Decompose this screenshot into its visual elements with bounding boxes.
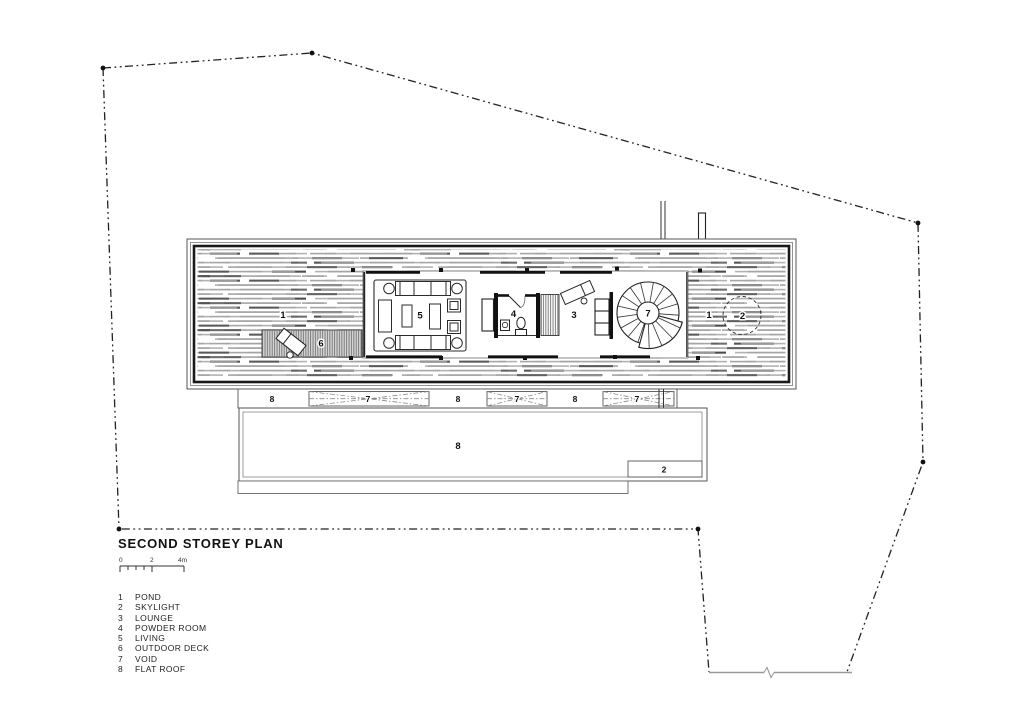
label-band-2: 8 xyxy=(456,394,461,404)
legend-item-flat-roof: 8FLAT ROOF xyxy=(118,664,209,674)
scale-tick-0: 0 xyxy=(119,557,123,564)
legend-num: 2 xyxy=(118,602,135,612)
corner-table xyxy=(452,283,463,294)
title-block: SECOND STOREY PLAN 0 2 4m xyxy=(118,536,418,582)
legend-name: FLAT ROOF xyxy=(135,664,209,674)
sofa xyxy=(595,299,609,335)
scale-bar: 0 2 4m xyxy=(118,555,208,577)
bench xyxy=(482,299,494,331)
label-flat-roof: 8 xyxy=(455,441,460,452)
legend-item-lounge: 3LOUNGE xyxy=(118,613,209,623)
lower-roof-edge xyxy=(238,481,628,494)
corner-table xyxy=(452,338,463,349)
scale-tick-2: 2 xyxy=(150,557,154,564)
legend-item-outdoor-deck: 6OUTDOOR DECK xyxy=(118,643,209,653)
legend-name: VOID xyxy=(135,654,209,664)
legend-num: 5 xyxy=(118,633,135,643)
label-band-5: 7 xyxy=(635,394,640,404)
flat-roof xyxy=(238,408,707,494)
break-mark xyxy=(764,668,774,678)
corner-table xyxy=(384,283,395,294)
legend-num: 1 xyxy=(118,592,135,602)
legend-item-powder-room: 4POWDER ROOM xyxy=(118,623,209,633)
section-marker-lines xyxy=(661,201,665,239)
flue-chimney xyxy=(699,213,706,240)
label-outdoor-deck: 6 xyxy=(318,339,323,350)
toilet xyxy=(517,317,525,329)
legend-name: POND xyxy=(135,592,209,602)
label-skylight-circle: 2 xyxy=(740,311,745,322)
label-void-stair: 7 xyxy=(645,309,650,320)
bench-right xyxy=(430,304,441,329)
bench-left xyxy=(379,300,392,332)
label-band-4: 8 xyxy=(573,394,578,404)
fireplace-wall xyxy=(610,292,614,339)
boundary-bottom-edge xyxy=(709,668,852,678)
label-powder-room: 4 xyxy=(511,309,517,320)
legend-item-pond: 1POND xyxy=(118,592,209,602)
label-pond-left: 1 xyxy=(280,310,286,321)
side-table xyxy=(581,298,587,304)
label-lounge: 3 xyxy=(571,310,576,321)
floor-plan-page: 1 6 5 4 3 7 1 2 8 7 8 7 8 7 8 2 SECOND S… xyxy=(0,0,1024,724)
legend-item-void: 7VOID xyxy=(118,654,209,664)
label-living: 5 xyxy=(417,311,423,322)
legend-num: 8 xyxy=(118,664,135,674)
sofa-top xyxy=(396,282,451,296)
side-table xyxy=(287,352,293,358)
label-skylight-box: 2 xyxy=(662,465,667,475)
legend-name: POWDER ROOM xyxy=(135,623,209,633)
coffee-table xyxy=(402,305,412,327)
closet-louvre xyxy=(541,295,559,336)
label-band-1: 7 xyxy=(366,394,371,404)
label-pond-right: 1 xyxy=(706,310,712,321)
legend-num: 7 xyxy=(118,654,135,664)
outdoor-deck xyxy=(262,328,362,358)
legend-num: 6 xyxy=(118,643,135,653)
legend-name: SKYLIGHT xyxy=(135,602,209,612)
legend-num: 4 xyxy=(118,623,135,633)
sink xyxy=(501,320,510,331)
sofa-bottom xyxy=(396,336,451,350)
legend-name: LOUNGE xyxy=(135,613,209,623)
label-band-3: 7 xyxy=(515,394,520,404)
corner-table xyxy=(384,338,395,349)
scale-tick-4m: 4m xyxy=(178,557,187,564)
legend-name: LIVING xyxy=(135,633,209,643)
label-band-0: 8 xyxy=(270,394,275,404)
legend-num: 3 xyxy=(118,613,135,623)
page-title: SECOND STOREY PLAN xyxy=(118,536,418,551)
legend-item-living: 5LIVING xyxy=(118,633,209,643)
legend-name: OUTDOOR DECK xyxy=(135,643,209,653)
legend-item-skylight: 2SKYLIGHT xyxy=(118,602,209,612)
legend: 1POND 2SKYLIGHT 3LOUNGE 4POWDER ROOM 5LI… xyxy=(118,592,209,674)
